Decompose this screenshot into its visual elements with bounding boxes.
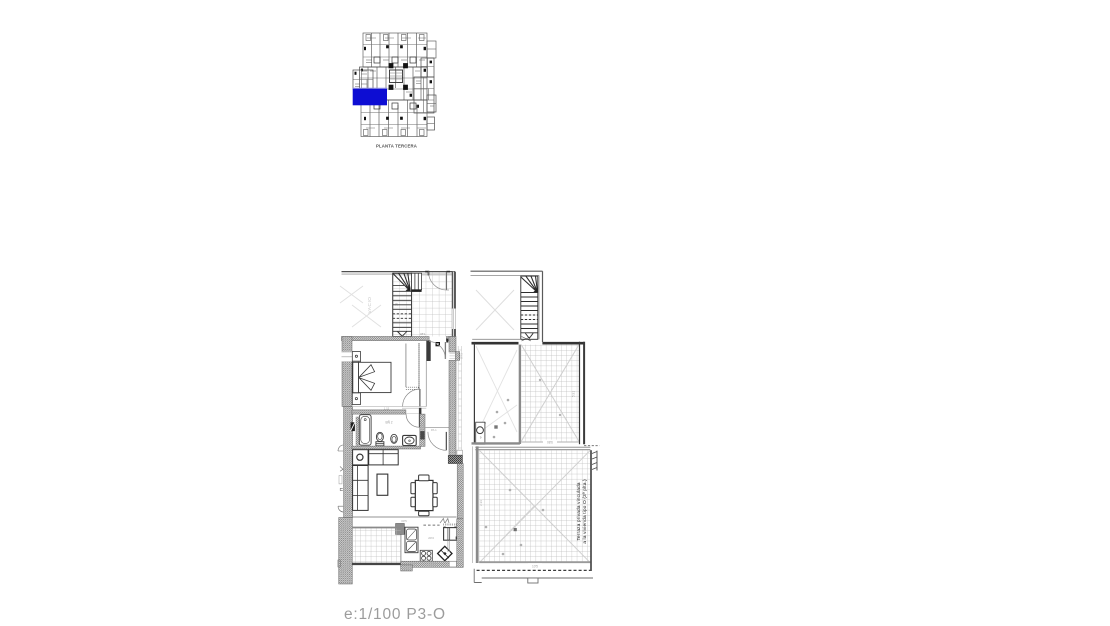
svg-text:5.91: 5.91 xyxy=(572,391,576,397)
svg-text:24'3: 24'3 xyxy=(428,536,434,540)
svg-text:08'6: 08'6 xyxy=(547,441,553,445)
svg-text:00'5: 00'5 xyxy=(401,519,407,523)
svg-text:VACIO: VACIO xyxy=(367,296,373,313)
svg-text:10'5: 10'5 xyxy=(532,565,538,569)
svg-text:2.33: 2.33 xyxy=(479,500,483,506)
svg-text:a la vivienda tipo O (3ª plta.: a la vivienda tipo O (3ª plta.) xyxy=(582,479,588,544)
svg-text:08'1: 08'1 xyxy=(420,332,426,336)
svg-text:Terraza privada vinculada: Terraza privada vinculada xyxy=(576,482,582,540)
svg-text:BÑ 2: BÑ 2 xyxy=(385,420,392,425)
svg-text:5.73: 5.73 xyxy=(460,353,464,359)
svg-text:e:1/100 P3-O: e:1/100 P3-O xyxy=(344,606,446,623)
svg-text:PLANTA TERCERA: PLANTA TERCERA xyxy=(376,143,417,148)
svg-text:PA 1: PA 1 xyxy=(431,428,437,432)
svg-text:3B: 3B xyxy=(394,303,398,307)
